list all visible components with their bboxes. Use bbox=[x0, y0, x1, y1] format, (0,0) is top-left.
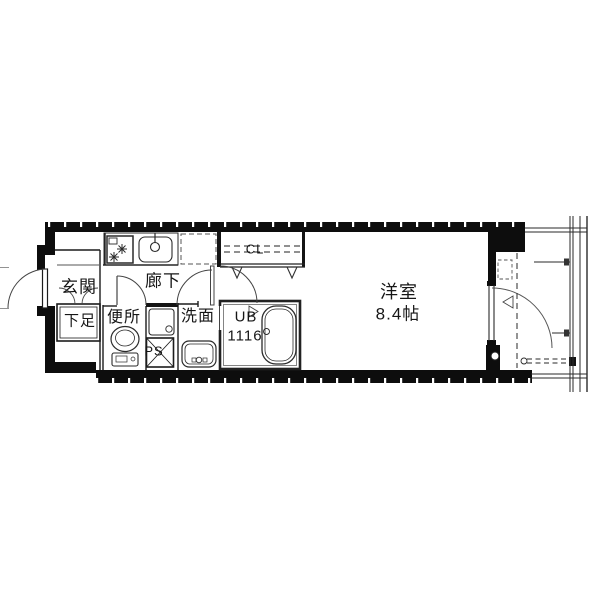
ac-unit-outline bbox=[498, 260, 512, 279]
label-shoe-storage: 下足 bbox=[64, 314, 96, 329]
kitchen-sink-icon bbox=[139, 233, 172, 262]
exterior-corridor-lines bbox=[0, 268, 9, 309]
refrigerator-space bbox=[181, 234, 216, 264]
label-closet: CL bbox=[246, 243, 265, 256]
label-unit-bath-size: 1116 bbox=[227, 329, 262, 344]
label-toilet: 便所 bbox=[107, 310, 141, 326]
western-room-door-arc bbox=[220, 266, 257, 303]
washroom-door bbox=[177, 266, 214, 305]
bottom-wall-hatch bbox=[96, 378, 532, 383]
balcony-railing bbox=[570, 216, 587, 392]
label-genkan: 玄関 bbox=[61, 279, 97, 296]
stove-icon bbox=[107, 236, 133, 263]
label-hallway: 廊下 bbox=[145, 273, 181, 290]
floorplan-drawing bbox=[0, 0, 600, 600]
washing-machine-pan-icon bbox=[149, 309, 174, 335]
label-western-room-size: 8.4帖 bbox=[376, 306, 421, 323]
label-pipe-space: PS bbox=[144, 345, 163, 358]
toilet-door bbox=[117, 276, 146, 305]
entrance-door bbox=[8, 269, 48, 308]
floorplan-canvas: 玄関 下足 廊下 便所 PS 洗面 UB 1116 CL 洋室 8.4帖 bbox=[0, 0, 600, 600]
label-unit-bath: UB bbox=[235, 310, 258, 325]
interior-walls bbox=[55, 233, 198, 370]
bathtub-icon bbox=[262, 306, 296, 364]
top-wall-hatch bbox=[45, 222, 525, 227]
label-western-room: 洋室 bbox=[380, 283, 418, 301]
toilet-icon bbox=[111, 327, 139, 367]
label-washroom: 洗面 bbox=[181, 309, 215, 325]
balcony bbox=[517, 228, 587, 378]
washbasin-icon bbox=[182, 341, 216, 367]
hall-room-walls bbox=[146, 232, 305, 307]
